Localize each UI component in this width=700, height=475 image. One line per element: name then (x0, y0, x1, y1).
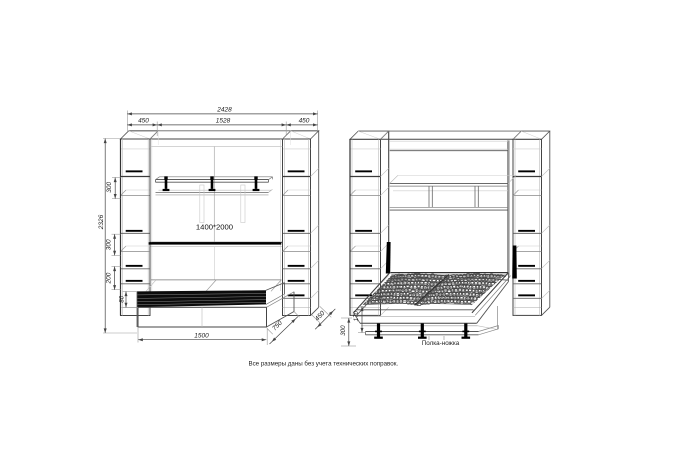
svg-text:200: 200 (105, 272, 112, 284)
svg-text:1400*2000: 1400*2000 (196, 223, 233, 232)
svg-text:170: 170 (353, 310, 360, 321)
svg-text:1528: 1528 (216, 117, 231, 124)
svg-text:1500: 1500 (194, 332, 209, 339)
svg-text:80: 80 (119, 295, 125, 302)
svg-text:2326: 2326 (98, 214, 105, 230)
svg-text:300: 300 (106, 181, 113, 192)
svg-text:Полка-ножка: Полка-ножка (422, 340, 460, 347)
svg-text:2428: 2428 (216, 106, 232, 113)
svg-text:300: 300 (105, 239, 112, 250)
svg-text:Все размеры даны без учета тех: Все размеры даны без учета технических п… (248, 361, 398, 368)
svg-text:450: 450 (299, 117, 310, 124)
svg-text:300: 300 (340, 325, 347, 336)
svg-text:450: 450 (138, 117, 149, 124)
